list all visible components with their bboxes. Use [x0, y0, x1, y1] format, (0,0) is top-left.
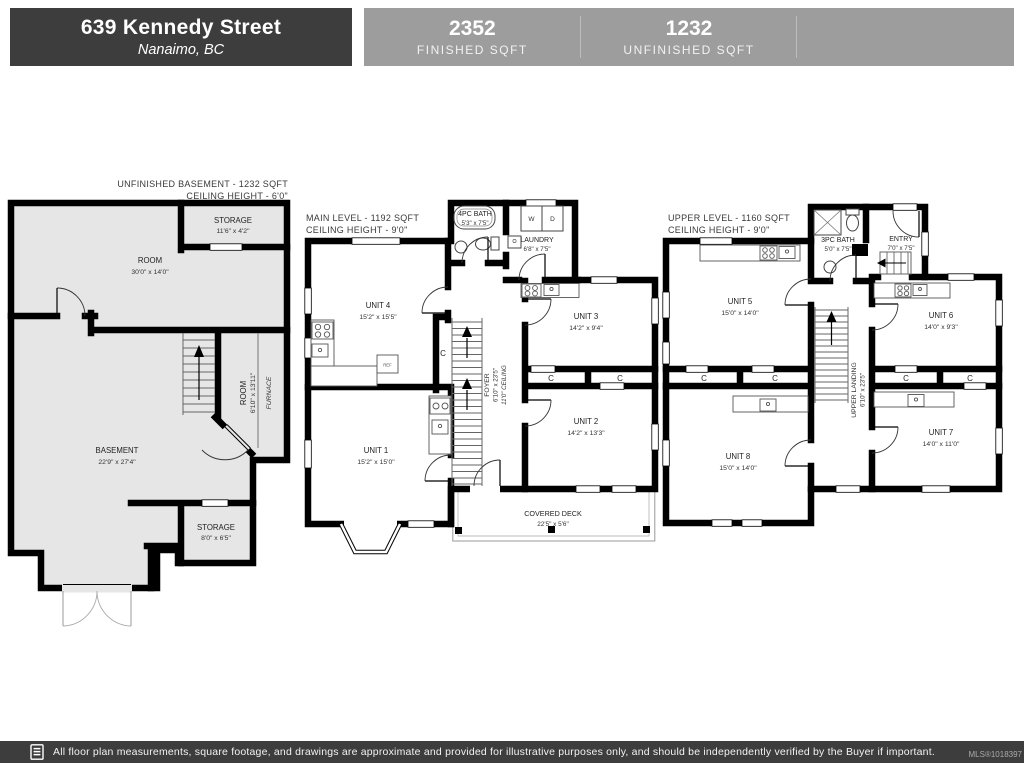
washer-label: W — [528, 216, 535, 223]
main-title: MAIN LEVEL - 1192 SQFT — [306, 213, 419, 223]
room-label-unit8: UNIT 8 — [726, 452, 751, 461]
disclaimer-bar: All floor plan measurements, square foot… — [0, 741, 1024, 763]
closet-label: C — [440, 349, 446, 358]
room-dims-4pc-bath: 5'3" x 7'5" — [461, 220, 488, 227]
room-dims-unit2: 14'2" x 13'3" — [567, 430, 605, 437]
dryer-label: D — [550, 216, 555, 223]
room-dims-room: 30'0" x 14'0" — [131, 269, 169, 276]
unit7-counter — [874, 392, 954, 407]
floorplan-canvas: UNFINISHED BASEMENT - 1232 SQFT CEILING … — [0, 0, 1024, 768]
room-label-unit6: UNIT 6 — [929, 311, 954, 320]
closet-label: C — [903, 374, 909, 383]
unfinished-sqft-stat: 1232 UNFINISHED SQFT — [581, 8, 798, 66]
room-dims-unit7: 14'0" x 11'0" — [923, 441, 960, 448]
disclaimer-text: All floor plan measurements, square foot… — [53, 746, 935, 758]
room-dims-unit1: 15'2" x 15'0" — [357, 459, 395, 466]
basement-double-door — [62, 584, 132, 627]
room-dims-storage-top: 11'6" x 4'2" — [217, 228, 251, 235]
room-dims-entry: 7'0" x 7'5" — [887, 245, 914, 252]
empty-stat-cell — [797, 8, 1014, 66]
closet-label: C — [701, 374, 707, 383]
property-city: Nanaimo, BC — [138, 42, 224, 58]
main-level-plan: MAIN LEVEL - 1192 SQFT CEILING HEIGHT - … — [305, 200, 659, 552]
fridge-label: REF — [383, 363, 392, 368]
upper-ceiling: CEILING HEIGHT - 9'0" — [668, 225, 770, 235]
room-label-unit5: UNIT 5 — [728, 297, 753, 306]
room-dims-deck: 22'5" x 5'6" — [537, 521, 569, 528]
room-dims-3pc-bath: 5'0" x 7'5" — [824, 246, 851, 253]
unit1-kitchen — [429, 396, 451, 454]
room-dims-unit4: 15'2" x 15'5" — [359, 314, 397, 321]
room-label-storage-bottom: STORAGE — [197, 523, 235, 532]
finished-sqft-label: FINISHED SQFT — [417, 43, 528, 57]
room-label-deck: COVERED DECK — [524, 509, 582, 518]
room-dims-unit6: 14'0" x 9'3" — [924, 324, 958, 331]
room-label-landing: UPPER LANDING — [851, 362, 858, 418]
closet-label: C — [772, 374, 778, 383]
room-dims-landing: 6'10" x 23'5" — [860, 373, 867, 407]
main-ceiling: CEILING HEIGHT - 9'0" — [306, 225, 408, 235]
room-dims-foyer: 6'10" x 23'5" — [493, 368, 500, 402]
room-label-basement: BASEMENT — [96, 446, 139, 455]
room-label-storage-top: STORAGE — [214, 216, 252, 225]
room-dims-basement: 22'9" x 27'4" — [98, 459, 136, 466]
mls-number: MLS®1018397 — [969, 750, 1023, 759]
finished-sqft-value: 2352 — [449, 17, 496, 40]
unit5-kitchen — [700, 245, 800, 261]
sqft-banner: 2352 FINISHED SQFT 1232 UNFINISHED SQFT — [364, 8, 1014, 66]
closet-label: C — [617, 374, 623, 383]
upper-level-plan: UPPER LEVEL - 1160 SQFT CEILING HEIGHT -… — [663, 204, 1003, 527]
unit3-kitchen — [521, 284, 579, 298]
basement-plan: UNFINISHED BASEMENT - 1232 SQFT CEILING … — [11, 179, 288, 626]
finished-sqft-stat: 2352 FINISHED SQFT — [364, 8, 581, 66]
room-label-laundry: LAUNDRY — [520, 237, 554, 244]
address-banner: 639 Kennedy Street Nanaimo, BC — [10, 8, 352, 66]
closet-label: C — [548, 374, 554, 383]
room-label-3pc-bath: 3PC BATH — [821, 237, 855, 244]
room-label-entry: ENTRY — [889, 236, 913, 243]
closet-label: C — [967, 374, 973, 383]
room-dims-storage-bottom: 8'0" x 6'5" — [201, 535, 231, 542]
room-label-furnace: FURNACE — [266, 376, 273, 409]
room-label-foyer: FOYER — [484, 373, 491, 397]
room-label-4pc-bath: 4PC BATH — [458, 211, 492, 218]
room-label-unit4: UNIT 4 — [366, 301, 391, 310]
room-dims-side-room: 6'10" x 13'11" — [250, 372, 257, 413]
room-label-room: ROOM — [138, 256, 162, 265]
unit8-counter — [733, 396, 808, 412]
unfinished-sqft-value: 1232 — [666, 17, 713, 40]
room-dims-unit5: 15'0" x 14'0" — [721, 310, 759, 317]
property-address: 639 Kennedy Street — [81, 16, 281, 39]
room-label-unit3: UNIT 3 — [574, 312, 599, 321]
upper-title: UPPER LEVEL - 1160 SQFT — [668, 213, 790, 223]
room-label-side-room: ROOM — [239, 381, 248, 405]
entry-stairs — [877, 252, 911, 274]
room-dims-unit3: 14'2" x 9'4" — [569, 325, 603, 332]
document-icon — [30, 744, 44, 760]
unit6-kitchen — [874, 283, 950, 298]
room-label-unit1: UNIT 1 — [364, 446, 389, 455]
room-dims-laundry: 6'8" x 7'5" — [523, 246, 550, 253]
room-label-unit2: UNIT 2 — [574, 417, 599, 426]
room-dims-unit8: 15'0" x 14'0" — [719, 465, 757, 472]
room-note-foyer: 11'0" CEILING — [501, 365, 508, 405]
unfinished-sqft-label: UNFINISHED SQFT — [623, 43, 754, 57]
basement-ceiling: CEILING HEIGHT - 6'0" — [186, 191, 288, 201]
room-label-unit7: UNIT 7 — [929, 428, 954, 437]
basement-title: UNFINISHED BASEMENT - 1232 SQFT — [117, 179, 288, 189]
